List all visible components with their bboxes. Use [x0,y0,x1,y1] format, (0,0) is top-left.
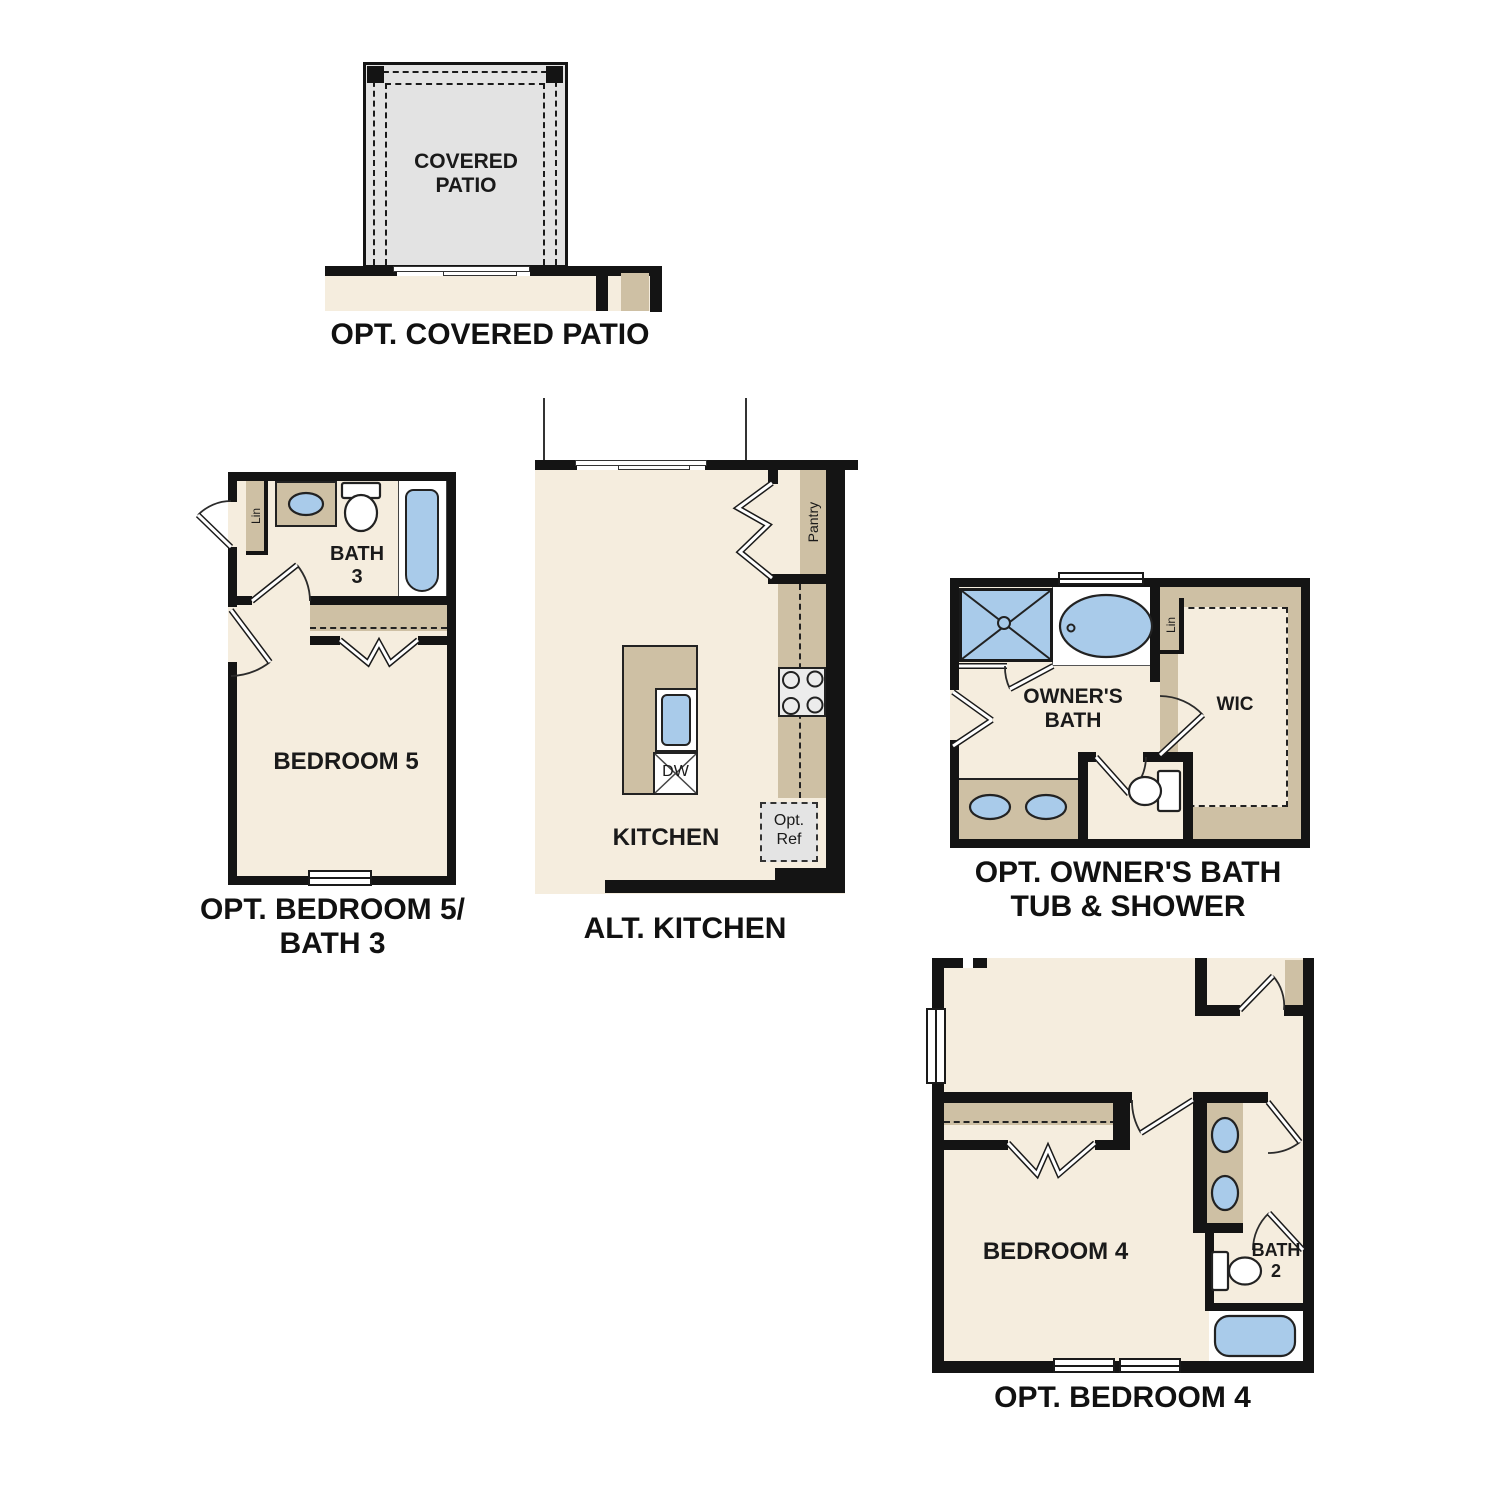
sink-icon [1212,1118,1238,1152]
bedroom5-bath3-floorplan: BATH 3 Lin BEDROOM 5 [222,465,467,897]
bedroom4-title: OPT. BEDROOM 4 [955,1381,1290,1415]
floorplan-options-sheet: { "colors": { "wall": "#141414", "floor"… [0,0,1500,1500]
bedroom4-floorplan: BEDROOM 4 BATH 2 [925,950,1320,1378]
owners-bath-floorplan: OWNER'S BATH WIC Lin [945,570,1317,855]
wic-label: WIC [1193,694,1277,716]
owners-bath-label: OWNER'S BATH [1003,685,1143,734]
covered-patio-floorplan: COVERED PATIO [325,55,670,317]
toilet-icon [1129,771,1180,811]
owners-bath-title: OPT. OWNER'S BATH TUB & SHOWER [948,856,1308,924]
sink-icon [289,493,323,515]
pantry-bifold-doors [738,483,772,578]
bedroom5-label: BEDROOM 5 [244,748,448,776]
closet-double-doors [340,640,418,663]
bathtub-icon [1060,595,1152,657]
bedroom5-bath3-title: OPT. BEDROOM 5/ BATH 3 [175,893,490,961]
exterior-door-swing [198,501,231,547]
bath2-label: BATH 2 [1245,1240,1307,1282]
sink-icon [970,795,1010,819]
sliding-door [443,271,517,276]
shower-icon [962,591,1050,659]
wall [596,267,608,311]
sink-icon [1026,795,1066,819]
cooktop-burners [783,672,823,715]
entry-double-doors [953,692,992,746]
bath3-door-swing [252,565,310,601]
bedroom5-door-swing [231,610,270,676]
bath3-label: BATH 3 [320,543,394,589]
alt-kitchen-title: ALT. KITCHEN [530,912,840,946]
bedroom4-label: BEDROOM 4 [953,1238,1158,1266]
kitchen-label: KITCHEN [588,824,744,852]
dishwasher-label: DW [653,763,698,782]
sink-icon [1212,1176,1238,1210]
roof-post-icon [546,66,563,83]
linen-label: Lin [250,485,264,547]
patio-room-label: COVERED PATIO [391,150,541,199]
closet-double-doors [1008,1143,1095,1174]
wall-section [621,273,649,311]
hall-door-swing [1240,976,1284,1010]
alt-kitchen-floorplan: DW Opt. Ref Pantry KITCHEN [530,398,865,898]
linen-label: Lin [1165,595,1179,655]
roof-post-icon [367,66,384,83]
optional-fridge-label: Opt. Ref [760,812,818,849]
wall [650,266,662,312]
pantry-label: Pantry [805,482,821,562]
vanity-door-swing [1268,1102,1300,1153]
covered-patio-title: OPT. COVERED PATIO [250,318,730,352]
toilet-icon [342,483,380,531]
bathtub-icon [1215,1316,1295,1356]
bedroom4-door-swing [1132,1100,1193,1133]
